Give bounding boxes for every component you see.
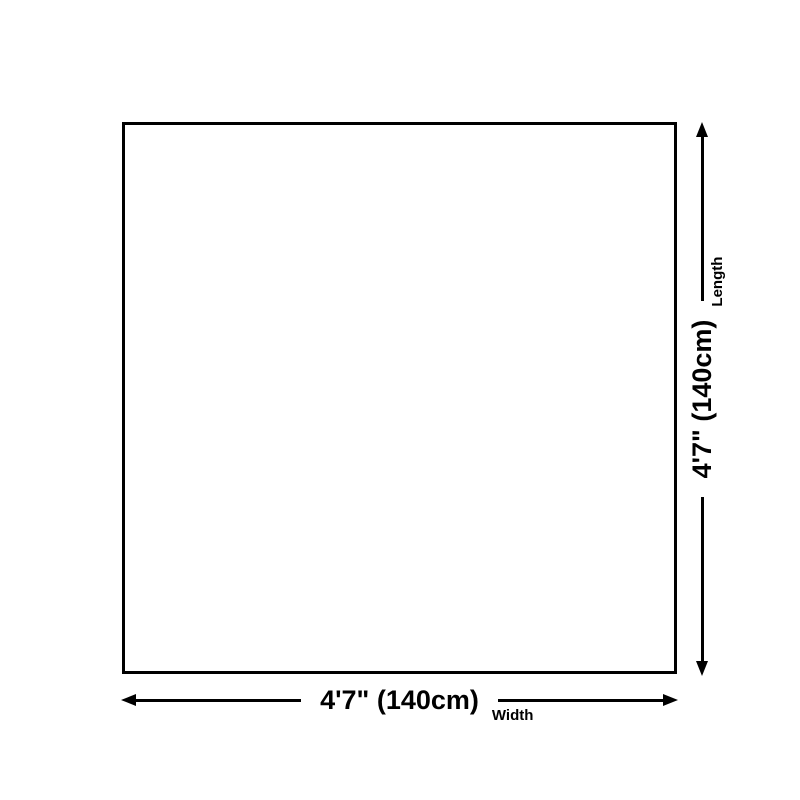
length-dimension-line-top <box>701 137 704 301</box>
width-dimension-line-right <box>498 699 663 702</box>
width-value-group: 4'7" (140cm) Width <box>320 684 479 716</box>
length-dimension-line-bottom <box>701 497 704 661</box>
width-dimension-line-left <box>136 699 301 702</box>
arrow-left-icon <box>121 694 136 706</box>
dimension-diagram: 4'7" (140cm) Width 4'7" (140cm) Length <box>0 0 800 800</box>
width-dimension: 4'7" (140cm) Width <box>121 678 678 722</box>
product-outline <box>122 122 677 674</box>
length-value: 4'7" (140cm) <box>687 320 717 479</box>
length-value-group: 4'7" (140cm) Length <box>686 320 718 479</box>
width-value: 4'7" (140cm) <box>320 685 479 715</box>
length-dimension: 4'7" (140cm) Length <box>680 122 724 676</box>
width-label: Width <box>492 707 534 724</box>
arrow-right-icon <box>663 694 678 706</box>
arrow-up-icon <box>696 122 708 137</box>
arrow-down-icon <box>696 661 708 676</box>
length-label: Length <box>709 257 726 307</box>
